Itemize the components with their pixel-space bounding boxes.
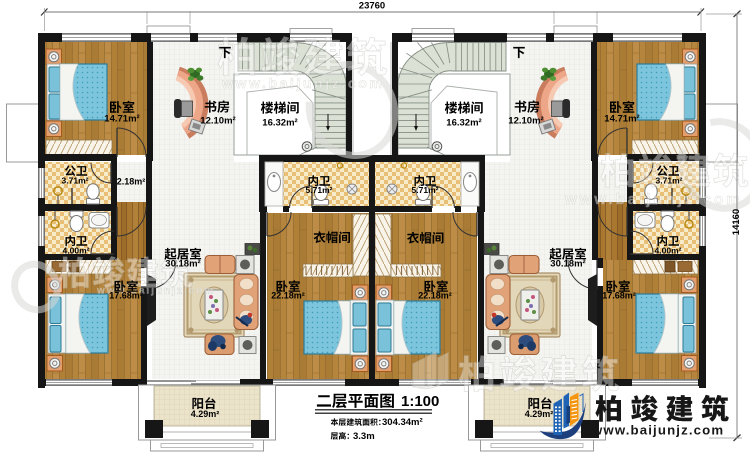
svg-text:www.baijunjz.com: www.baijunjz.com <box>564 191 742 208</box>
svg-text:22.18m²: 22.18m² <box>418 291 452 301</box>
svg-text:3.71m²: 3.71m² <box>62 176 89 186</box>
svg-text:12.10m²: 12.10m² <box>200 116 235 127</box>
svg-text:12.10m²: 12.10m² <box>508 116 543 127</box>
svg-text:22.18m²: 22.18m² <box>271 291 305 301</box>
svg-text:17.68m²: 17.68m² <box>602 291 636 301</box>
svg-text:4.00m²: 4.00m² <box>63 246 90 256</box>
svg-text:304.34m²: 304.34m² <box>382 417 423 428</box>
svg-text:14.71m²: 14.71m² <box>104 114 139 125</box>
svg-text:1:100: 1:100 <box>401 393 439 410</box>
svg-text:16.32m²: 16.32m² <box>262 118 297 129</box>
svg-text:5.71m²: 5.71m² <box>412 185 439 195</box>
svg-text:2.18m²: 2.18m² <box>117 177 146 187</box>
svg-text:14.71m²: 14.71m² <box>604 114 639 125</box>
svg-text:30.18m²: 30.18m² <box>550 259 585 270</box>
svg-text:4.29m²: 4.29m² <box>191 409 220 419</box>
svg-text:3.71m²: 3.71m² <box>656 176 683 186</box>
svg-text:17.68m²: 17.68m² <box>109 291 143 301</box>
svg-text:5.71m²: 5.71m² <box>306 185 333 195</box>
svg-text:4.29m²: 4.29m² <box>525 409 554 419</box>
svg-text:16.32m²: 16.32m² <box>446 118 481 129</box>
svg-text:30.18m²: 30.18m² <box>165 259 200 270</box>
svg-text:www.baijunjz.com: www.baijunjz.com <box>221 75 384 91</box>
svg-text:23760: 23760 <box>359 1 385 12</box>
svg-text:4.00m²: 4.00m² <box>655 246 682 256</box>
svg-text:14160: 14160 <box>731 209 742 235</box>
svg-text:3.3m: 3.3m <box>353 431 375 442</box>
svg-text:www.baijunjz.com: www.baijunjz.com <box>591 423 724 438</box>
